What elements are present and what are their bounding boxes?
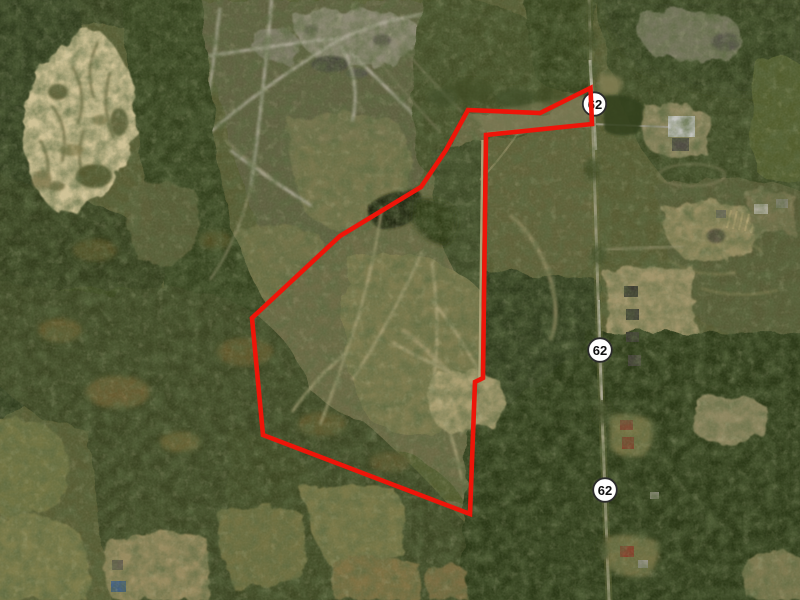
svg-text:62: 62 <box>593 343 607 358</box>
svg-text:62: 62 <box>598 483 612 498</box>
